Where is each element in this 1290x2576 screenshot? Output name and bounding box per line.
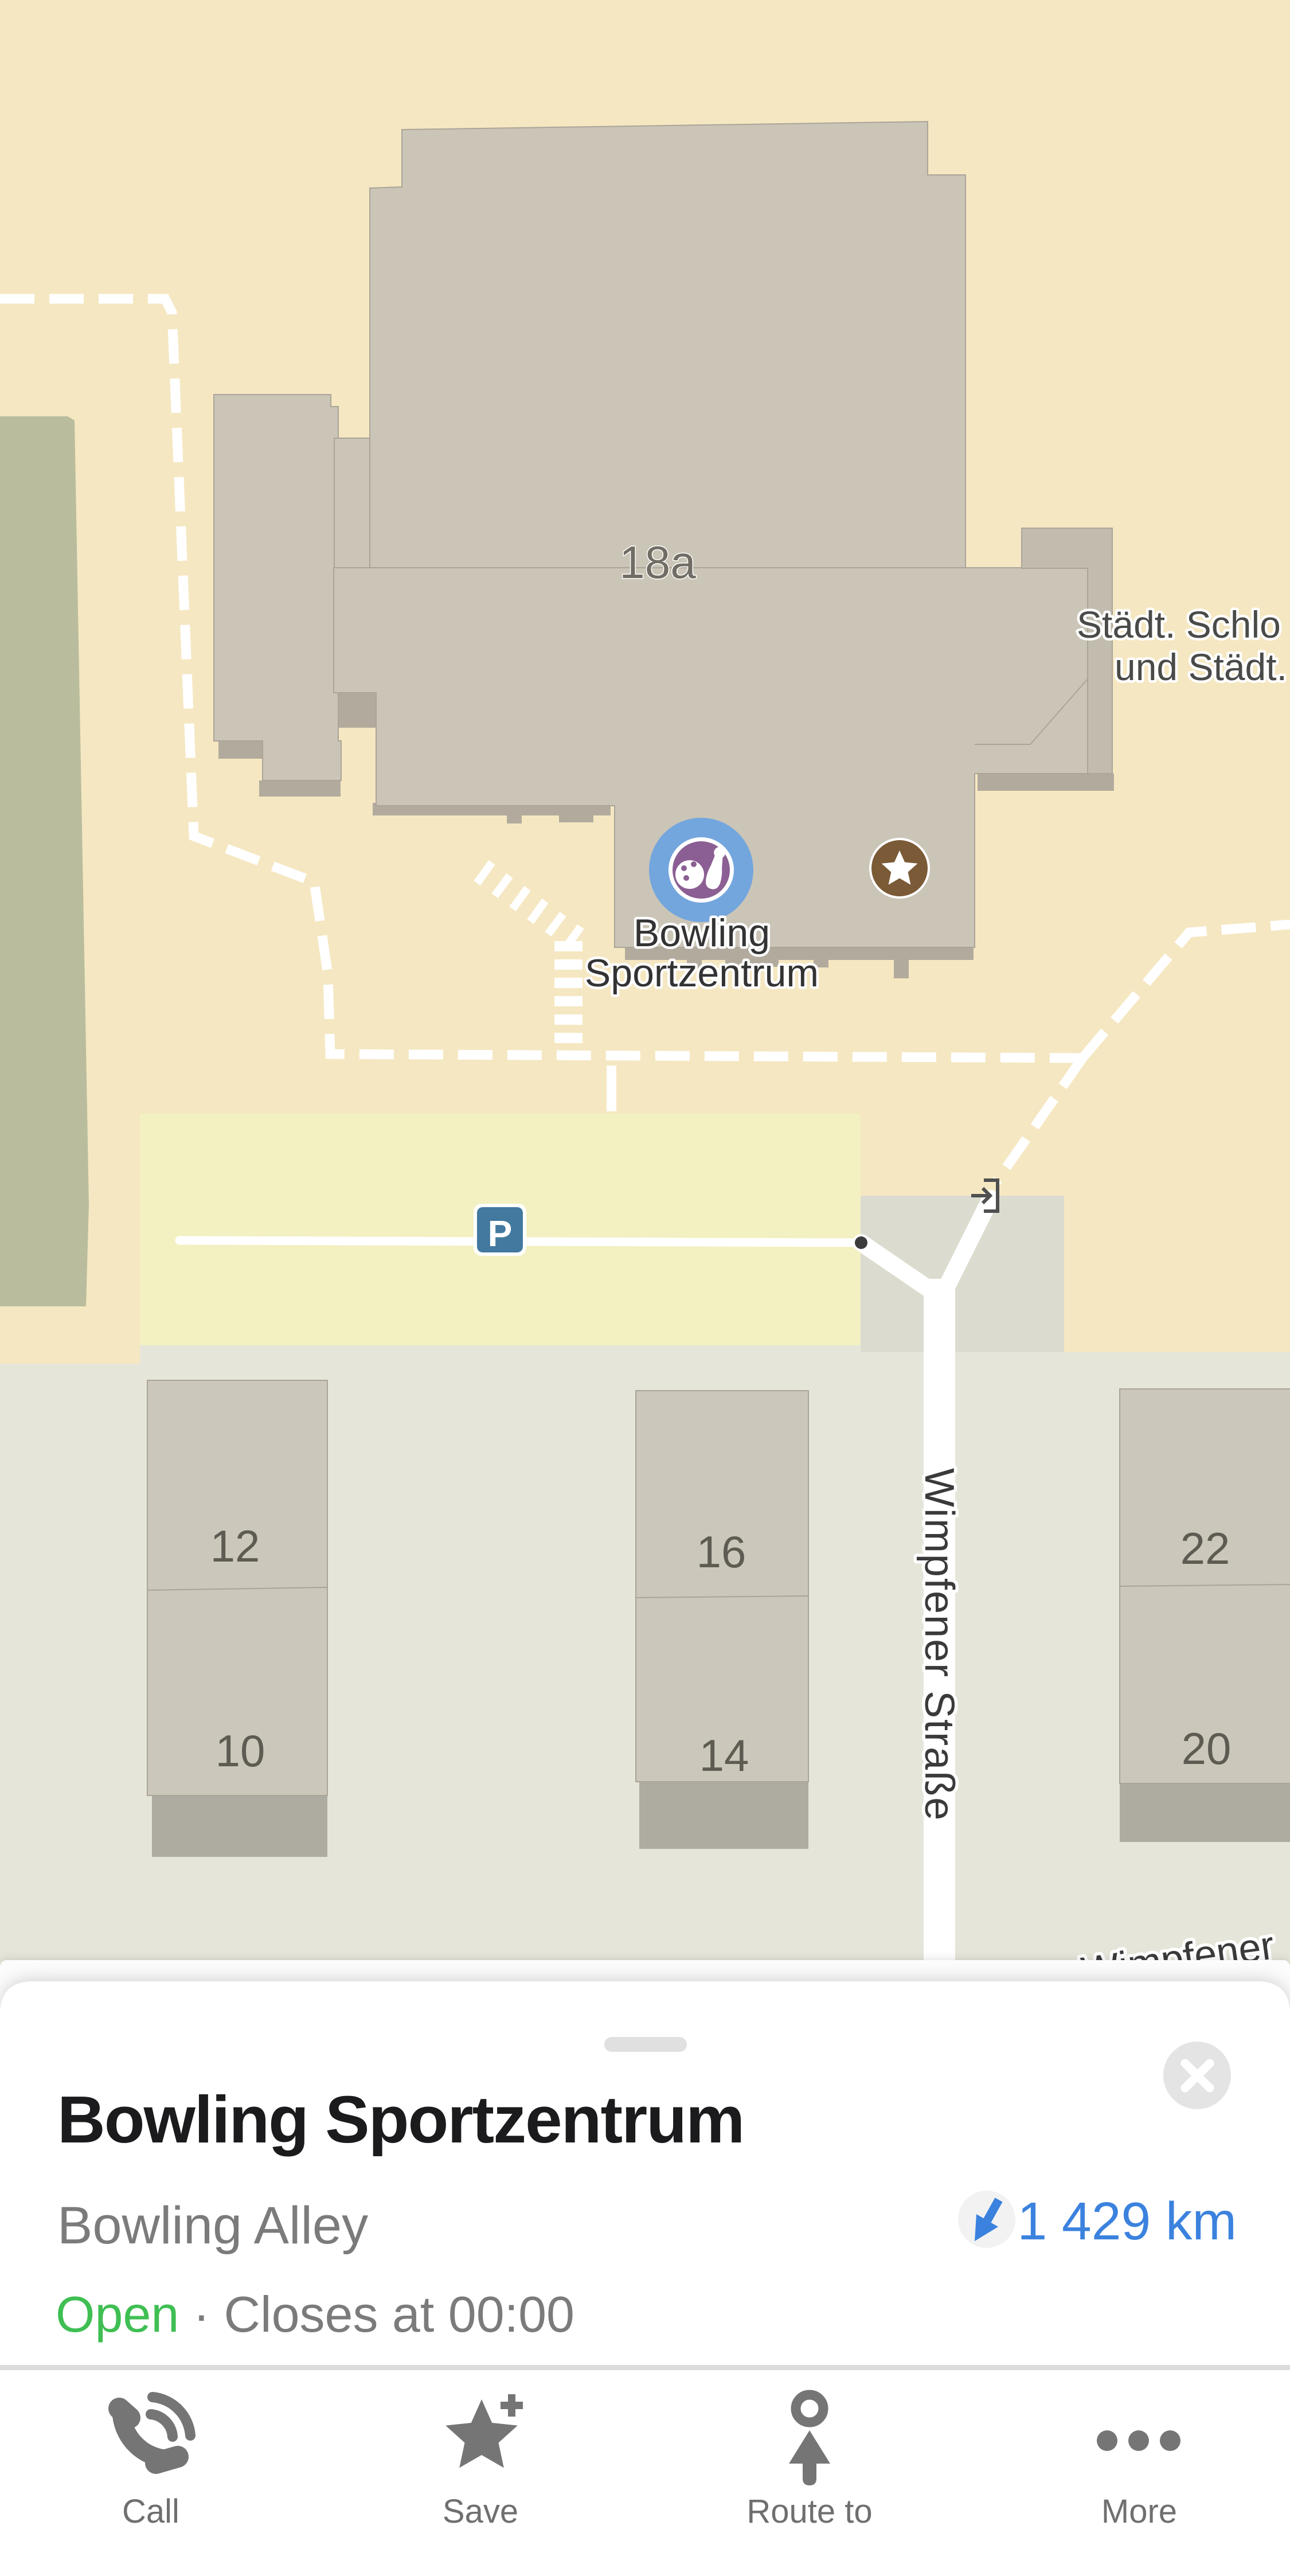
svg-text:Städt. Schlo: Städt. Schlo — [1077, 603, 1281, 646]
svg-text:14: 14 — [699, 1730, 749, 1781]
svg-text:Save: Save — [443, 2493, 518, 2530]
svg-text:Sportzentrum: Sportzentrum — [585, 951, 819, 995]
svg-text:Route to: Route to — [746, 2493, 872, 2530]
svg-text:20: 20 — [1182, 1723, 1232, 1774]
svg-text:Bowling Sportzentrum: Bowling Sportzentrum — [57, 2082, 744, 2157]
svg-text:10: 10 — [216, 1726, 265, 1776]
svg-text:1 429 km: 1 429 km — [1017, 2191, 1237, 2251]
svg-text:12: 12 — [210, 1521, 260, 1571]
svg-text:16: 16 — [697, 1527, 746, 1577]
svg-text:P: P — [488, 1213, 513, 1254]
svg-text:Open · Closes at 00:00: Open · Closes at 00:00 — [56, 2286, 574, 2343]
svg-text:Wimpfener Straße: Wimpfener Straße — [916, 1468, 962, 1821]
svg-text:22: 22 — [1180, 1523, 1230, 1574]
svg-text:Bowling Alley: Bowling Alley — [57, 2196, 368, 2255]
svg-text:Bowling: Bowling — [634, 911, 770, 955]
svg-text:und Städt.: und Städt. — [1115, 646, 1287, 688]
svg-text:More: More — [1101, 2493, 1177, 2530]
svg-text:18a: 18a — [619, 537, 696, 588]
svg-text:Call: Call — [122, 2493, 179, 2530]
